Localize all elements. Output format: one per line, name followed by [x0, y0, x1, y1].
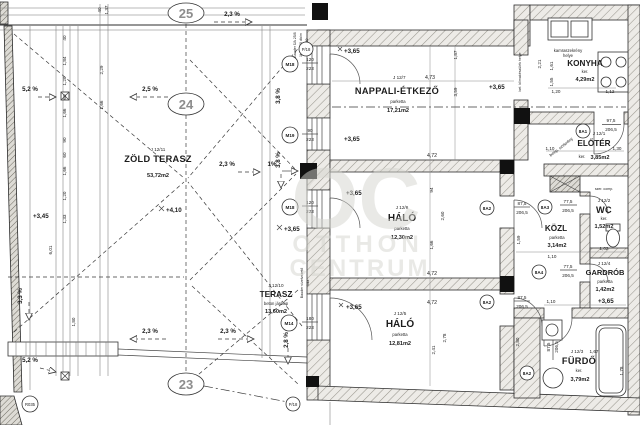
room-code: J 12/2	[598, 198, 611, 203]
door-size: 77,5	[564, 199, 573, 204]
note: helye	[563, 53, 574, 58]
axis-number: 24	[179, 97, 194, 112]
room-name: TERASZ	[260, 290, 293, 299]
dim-label: 2,80	[515, 337, 520, 346]
level-label: +3,65	[344, 48, 360, 55]
floor-plan-page: 25 24 23	[0, 0, 640, 425]
dim-label: 4,72	[427, 300, 437, 306]
room-area: 17,21m2	[387, 108, 409, 114]
dim-label: 90	[62, 137, 67, 143]
axis-number: 23	[179, 377, 193, 392]
room-name: NAPPALI-ÉTKEZŐ	[355, 85, 439, 96]
dim-label: 1,59	[516, 235, 521, 244]
door-id: 8A4	[535, 270, 544, 275]
dim-label: 94	[429, 187, 434, 193]
level-label: +3,45	[33, 213, 49, 220]
slope-label: 2,3 %	[142, 328, 158, 335]
door-size: 87,5	[518, 295, 527, 300]
room-code: J 12/1	[593, 131, 606, 136]
level-label: +3,65	[344, 136, 360, 143]
dim-label: 40	[62, 35, 67, 41]
slope-label: 5,2 %	[22, 86, 38, 93]
room-name: HÁLÓ	[386, 317, 415, 330]
dim-label: 2,21	[537, 59, 542, 68]
slope-label: 2,3 %	[224, 11, 240, 18]
dim-label: 2,29	[99, 65, 104, 74]
room-name: WC	[596, 205, 612, 215]
dim-label: 1,80	[71, 317, 76, 326]
dim-label: 2,41	[431, 345, 436, 354]
washbasin	[543, 368, 563, 388]
dim-label: 1,10	[547, 299, 556, 304]
ref-label: R035	[25, 402, 36, 407]
column	[500, 160, 514, 174]
room-area: 3,85m2	[591, 155, 610, 161]
window-size: 223	[306, 137, 314, 142]
note: Bauder ÜA 25/8	[293, 32, 297, 57]
door-size: 206,5	[605, 127, 617, 132]
room-floor: ker.	[576, 368, 583, 373]
door-size: 206,5	[516, 210, 528, 215]
room-name: GARDRÓB	[586, 268, 625, 277]
dim-label: 4,72	[427, 153, 437, 159]
door-id: 8A2	[523, 371, 532, 376]
level-label: +3,65	[346, 304, 362, 311]
dim-label: 1,66	[429, 240, 434, 249]
dim-label: 60	[62, 94, 67, 100]
dim-label: 1,66	[62, 166, 67, 175]
dim-label: 1,12	[606, 89, 615, 94]
watermark: OC OTTHON CENTRUM	[290, 151, 431, 282]
level-label: +3,65	[598, 298, 614, 305]
dim-label: 1,02	[600, 246, 609, 251]
threshold-block	[306, 376, 319, 387]
room-code: J 12/11	[151, 147, 166, 152]
column	[514, 108, 530, 124]
watermark-text: OTTHON	[292, 231, 423, 258]
dim-label: 1,55	[549, 77, 554, 86]
window-size: 90	[307, 128, 313, 133]
slope-label: 2,5 %	[142, 86, 158, 93]
dim-label: 1,78	[619, 366, 624, 375]
door-size: 87,5	[546, 342, 551, 351]
dim-label: 1,66	[99, 100, 104, 109]
door-size: 87,5	[518, 201, 527, 206]
door-id: 8A3	[541, 205, 550, 210]
dim-label: 2,60	[440, 211, 445, 220]
dim-label: 1,61	[549, 61, 554, 70]
note: szer. comp.	[595, 187, 613, 191]
window-size: 223	[306, 325, 314, 330]
window-size: 180	[306, 316, 314, 321]
dim-label: 1,84	[62, 56, 67, 65]
toilet	[607, 229, 620, 247]
room-name: ZÖLD TERASZ	[124, 154, 192, 164]
door-size: 206,5	[554, 341, 559, 353]
room-name: KÖZL	[545, 223, 567, 233]
slope-label: 2,3 %	[219, 161, 235, 168]
floor-plan-drawing: 25 24 23	[0, 0, 640, 425]
room-area: 13,60m2	[265, 309, 287, 315]
room-name: KONYHA	[567, 59, 603, 68]
slope-label: 3,8 %	[275, 88, 282, 104]
door-size: 97,5	[607, 118, 616, 123]
room-floor: parketta	[392, 332, 408, 337]
level-label: +3,65	[489, 84, 505, 91]
top-left-hatch	[0, 2, 8, 24]
room-code: J 12/7	[393, 75, 406, 80]
slope-label: 3,8 %	[275, 152, 282, 168]
dim-label: 4,73	[425, 75, 435, 81]
room-code: J 12/3	[571, 349, 584, 354]
room-area: 3,79m2	[571, 377, 590, 383]
dim-label: 60	[62, 152, 67, 158]
room-area: 1,42m2	[596, 287, 615, 293]
dim-label: 1,20	[62, 76, 67, 85]
slope-label: 2,3 %	[220, 328, 236, 335]
dim-label: 1,20	[552, 89, 561, 94]
dim-label: 1,10	[548, 254, 557, 259]
watermark-text: CENTRUM	[290, 255, 431, 282]
ref-label: P/18	[289, 402, 298, 407]
room-floor: beton járólap	[264, 301, 289, 306]
room-area: 3,14m2	[548, 243, 567, 249]
dim-label: 1,20	[62, 191, 67, 200]
room-area: 4,29m2	[576, 77, 595, 83]
room-floor: ker.	[582, 69, 589, 74]
slope-label: 5,2 %	[22, 357, 38, 364]
note: bel. klímakészülék helye	[518, 53, 522, 92]
dim-label: 40	[97, 7, 102, 13]
dim-label: 3,59	[453, 87, 458, 96]
room-code: J 12/4	[598, 261, 611, 266]
window-id: M14	[285, 321, 294, 326]
column	[312, 3, 328, 20]
window-id: M19	[286, 133, 295, 138]
window-id: M18	[286, 62, 295, 67]
dim-label: 1,66	[62, 108, 67, 117]
door-id: 8A2	[483, 300, 492, 305]
dim-label: 1,87	[453, 50, 458, 59]
door-size: 206,5	[516, 304, 528, 309]
room-floor: parketta	[597, 279, 613, 284]
door-size: 206,5	[562, 273, 574, 278]
level-label: +4,10	[166, 207, 182, 214]
door-size: 77,5	[564, 264, 573, 269]
column	[500, 276, 514, 292]
room-name: FÜRDŐ	[562, 355, 596, 366]
dim-label: 6,01	[48, 245, 53, 254]
room-floor: ker.	[579, 154, 586, 159]
room-code: J 12/10	[268, 283, 284, 288]
door-id: 8A2	[483, 206, 492, 211]
axis-number: 25	[179, 6, 193, 21]
window-size: 120	[306, 57, 314, 62]
dim-label: 2,78	[442, 333, 447, 342]
dim-label: 1,37	[104, 5, 109, 14]
room-area: 53,72m2	[147, 173, 169, 179]
room-floor: ker.	[601, 216, 608, 221]
slope-label: 3,3 %	[17, 288, 24, 304]
dim-label: 1,30	[613, 146, 622, 151]
slope-label: 2,8 %	[283, 332, 290, 348]
door-id: 8A1	[579, 129, 588, 134]
door-size: 206,5	[562, 208, 574, 213]
room-code: J 12/5	[394, 311, 407, 316]
room-floor: parketta	[390, 99, 406, 104]
dim-label: 1,33	[62, 214, 67, 223]
window-size: 223	[306, 66, 314, 71]
room-floor: parketta	[549, 235, 565, 240]
room-area: 12,81m2	[389, 341, 411, 347]
room-name: ELŐTÉR	[577, 137, 610, 148]
ref-label: P/18	[302, 47, 311, 52]
room-area: 1,52m2	[595, 224, 614, 230]
dim-label: 1,67	[590, 349, 599, 354]
